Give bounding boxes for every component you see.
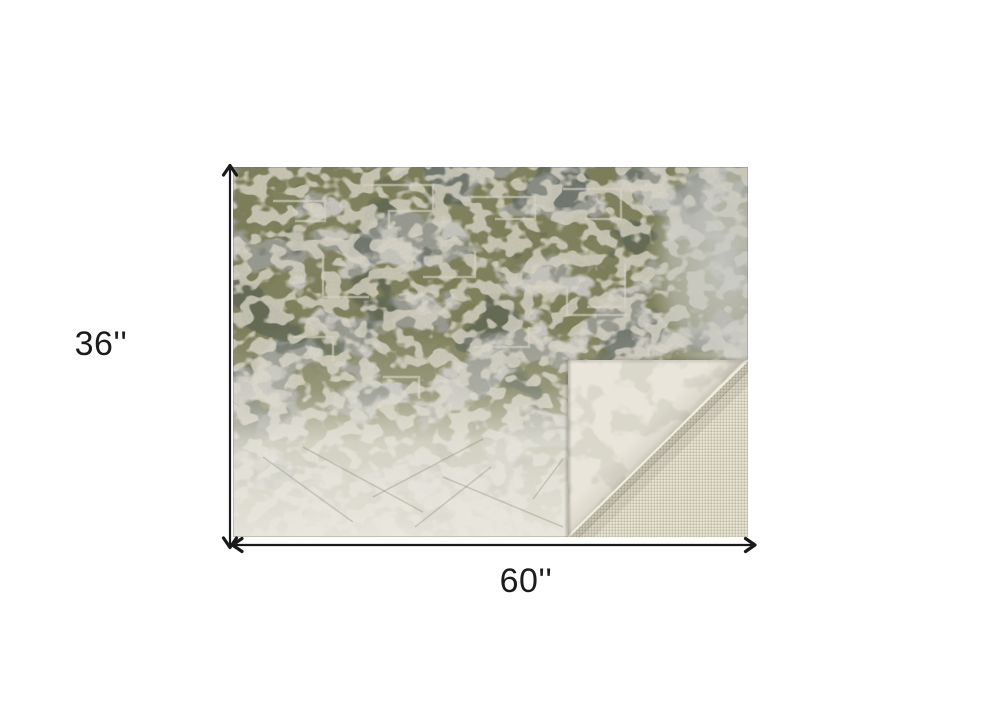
height-dimension-label: 36'' <box>55 324 147 364</box>
width-dimension-label: 60'' <box>480 561 572 601</box>
fold-top-seam <box>568 356 748 364</box>
fold-left-seam <box>564 360 572 537</box>
arrowhead-down-icon <box>224 538 237 548</box>
rug-image <box>233 167 748 537</box>
arrowhead-left-icon <box>233 539 243 552</box>
product-dimension-diagram: 36'' 60'' <box>0 0 1000 714</box>
arrowhead-right-icon <box>746 539 756 552</box>
folded-corner <box>564 356 748 537</box>
rug-photo <box>233 167 748 537</box>
width-arrow <box>233 539 756 552</box>
